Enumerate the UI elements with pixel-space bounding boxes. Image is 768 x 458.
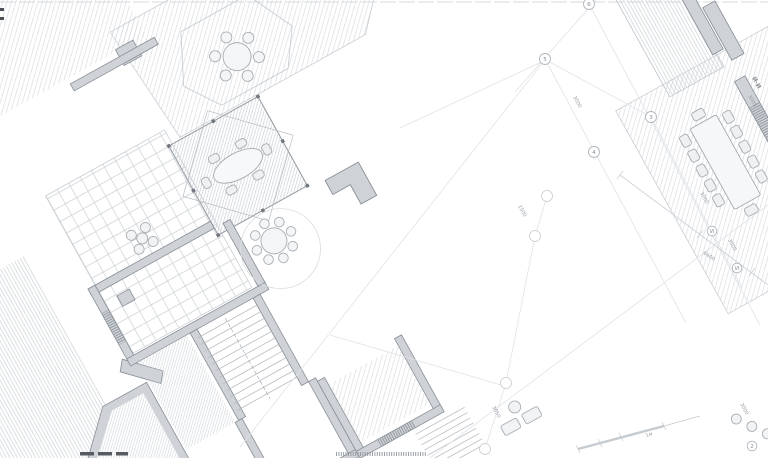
grid-bubble-2: 2 (747, 441, 757, 451)
svg-text:И: И (735, 266, 739, 272)
grid-bubble-6: 6 (584, 0, 595, 10)
svg-text:4: 4 (592, 150, 596, 156)
grid-bubble-3: 3 (646, 112, 657, 123)
svg-text:2: 2 (750, 444, 754, 450)
section-bubble-a: И (707, 226, 717, 236)
section-bubble-b: И (732, 263, 742, 273)
svg-text:5: 5 (543, 57, 547, 63)
floor-plan-svg: 6 5 4 3 И И 2 3000 3000 6400 3000 1500 3… (0, 0, 768, 458)
grid-bubble-5: 5 (540, 54, 551, 65)
grid-bubble-4: 4 (589, 147, 600, 158)
blueprint-image: 6 5 4 3 И И 2 3000 3000 6400 3000 1500 3… (0, 0, 768, 458)
svg-text:3: 3 (649, 115, 653, 121)
svg-text:6: 6 (587, 2, 591, 8)
svg-text:И: И (710, 229, 714, 235)
